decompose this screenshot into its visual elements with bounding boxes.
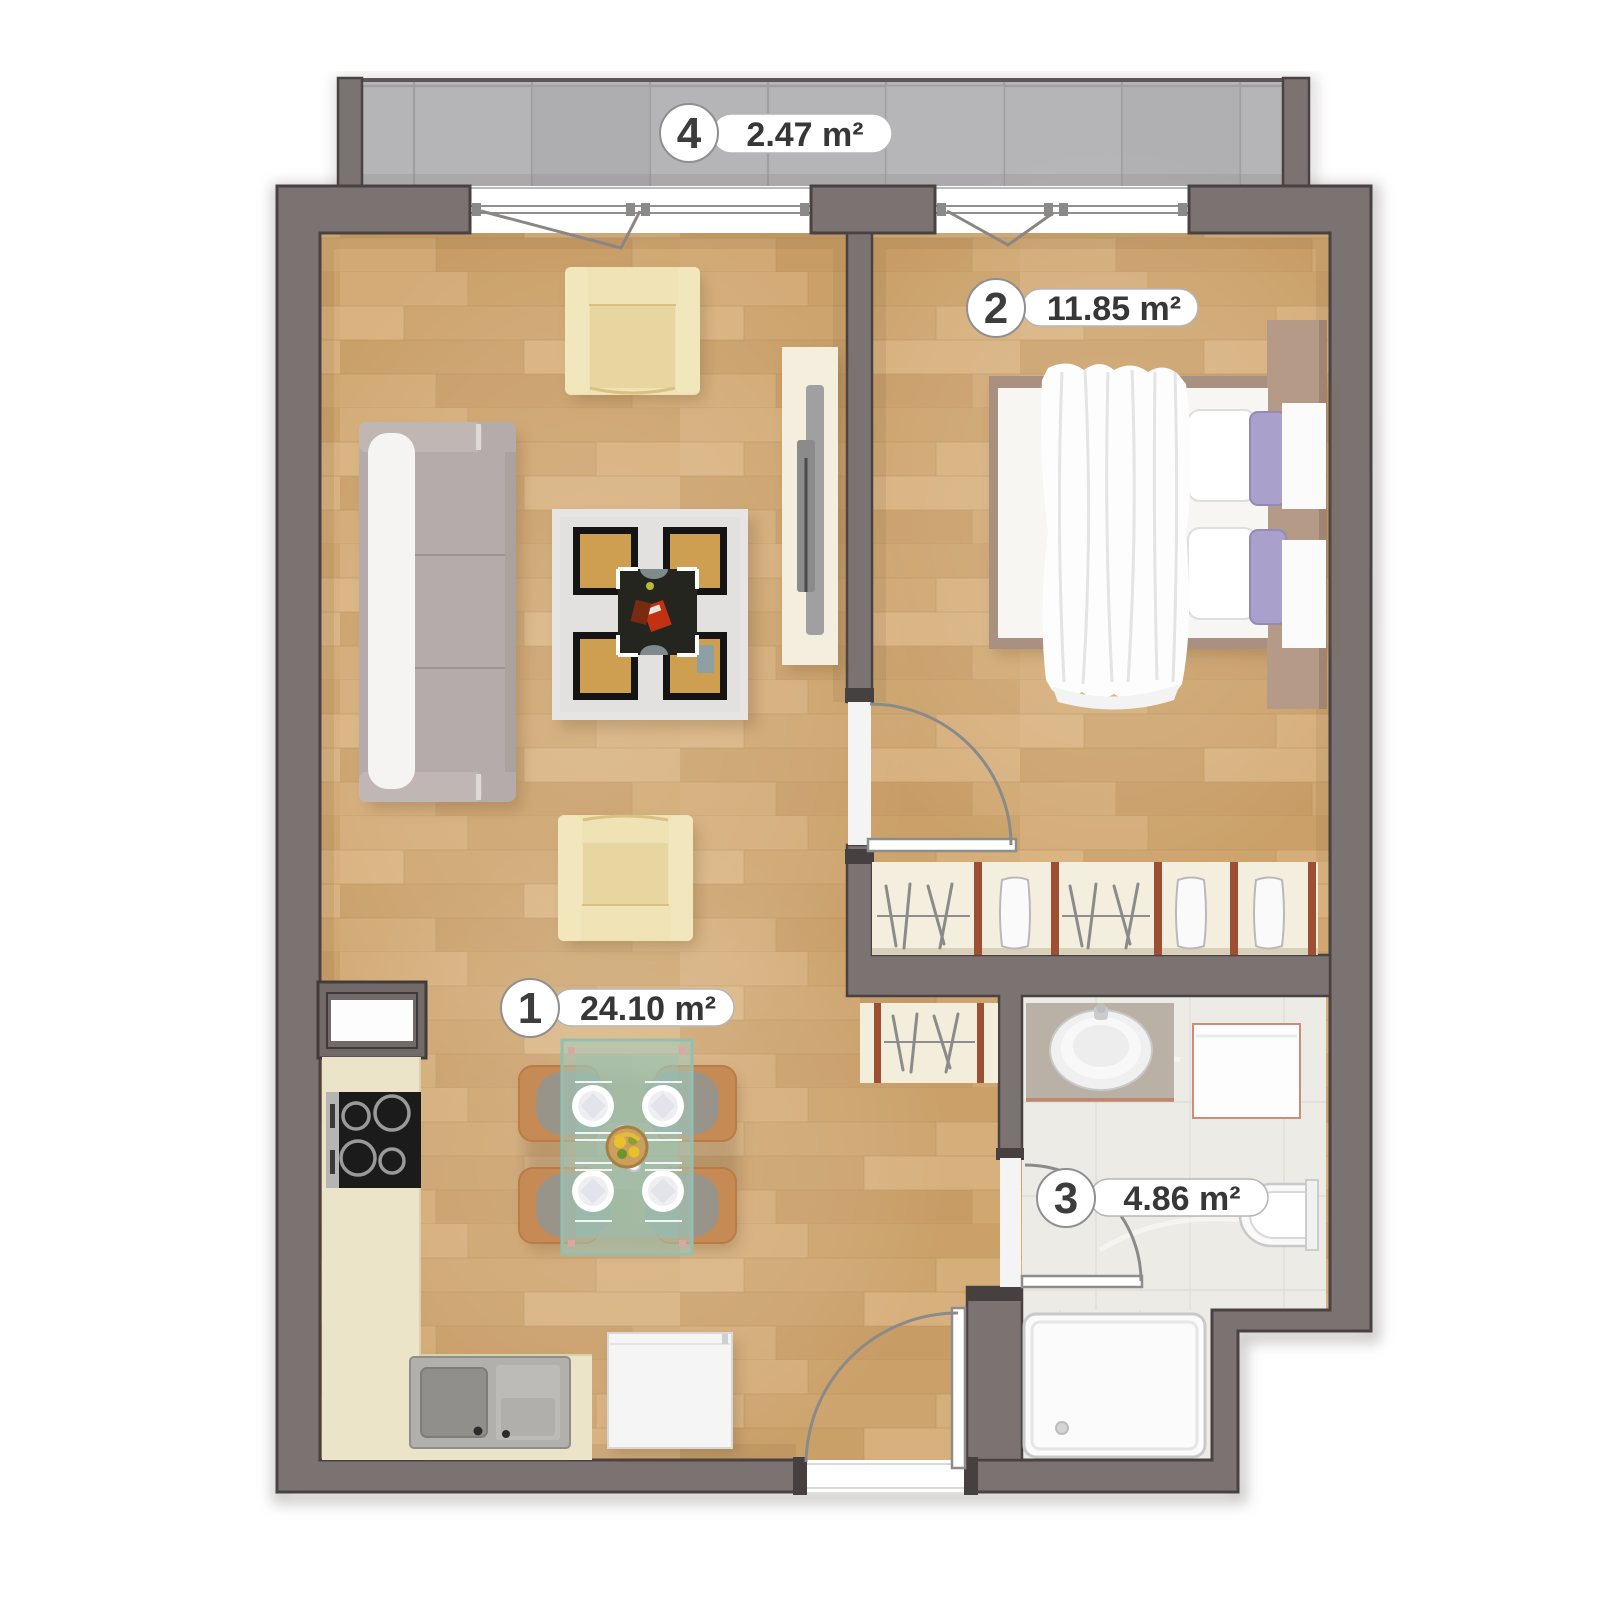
- svg-text:1: 1: [518, 984, 542, 1033]
- svg-text:2.47 m²: 2.47 m²: [746, 116, 863, 154]
- svg-text:4.86 m²: 4.86 m²: [1123, 1180, 1240, 1218]
- svg-text:4: 4: [677, 109, 702, 158]
- svg-text:3: 3: [1054, 1174, 1078, 1223]
- svg-text:2: 2: [984, 284, 1008, 333]
- svg-text:24.10 m²: 24.10 m²: [580, 990, 716, 1028]
- svg-text:11.85 m²: 11.85 m²: [1047, 290, 1181, 328]
